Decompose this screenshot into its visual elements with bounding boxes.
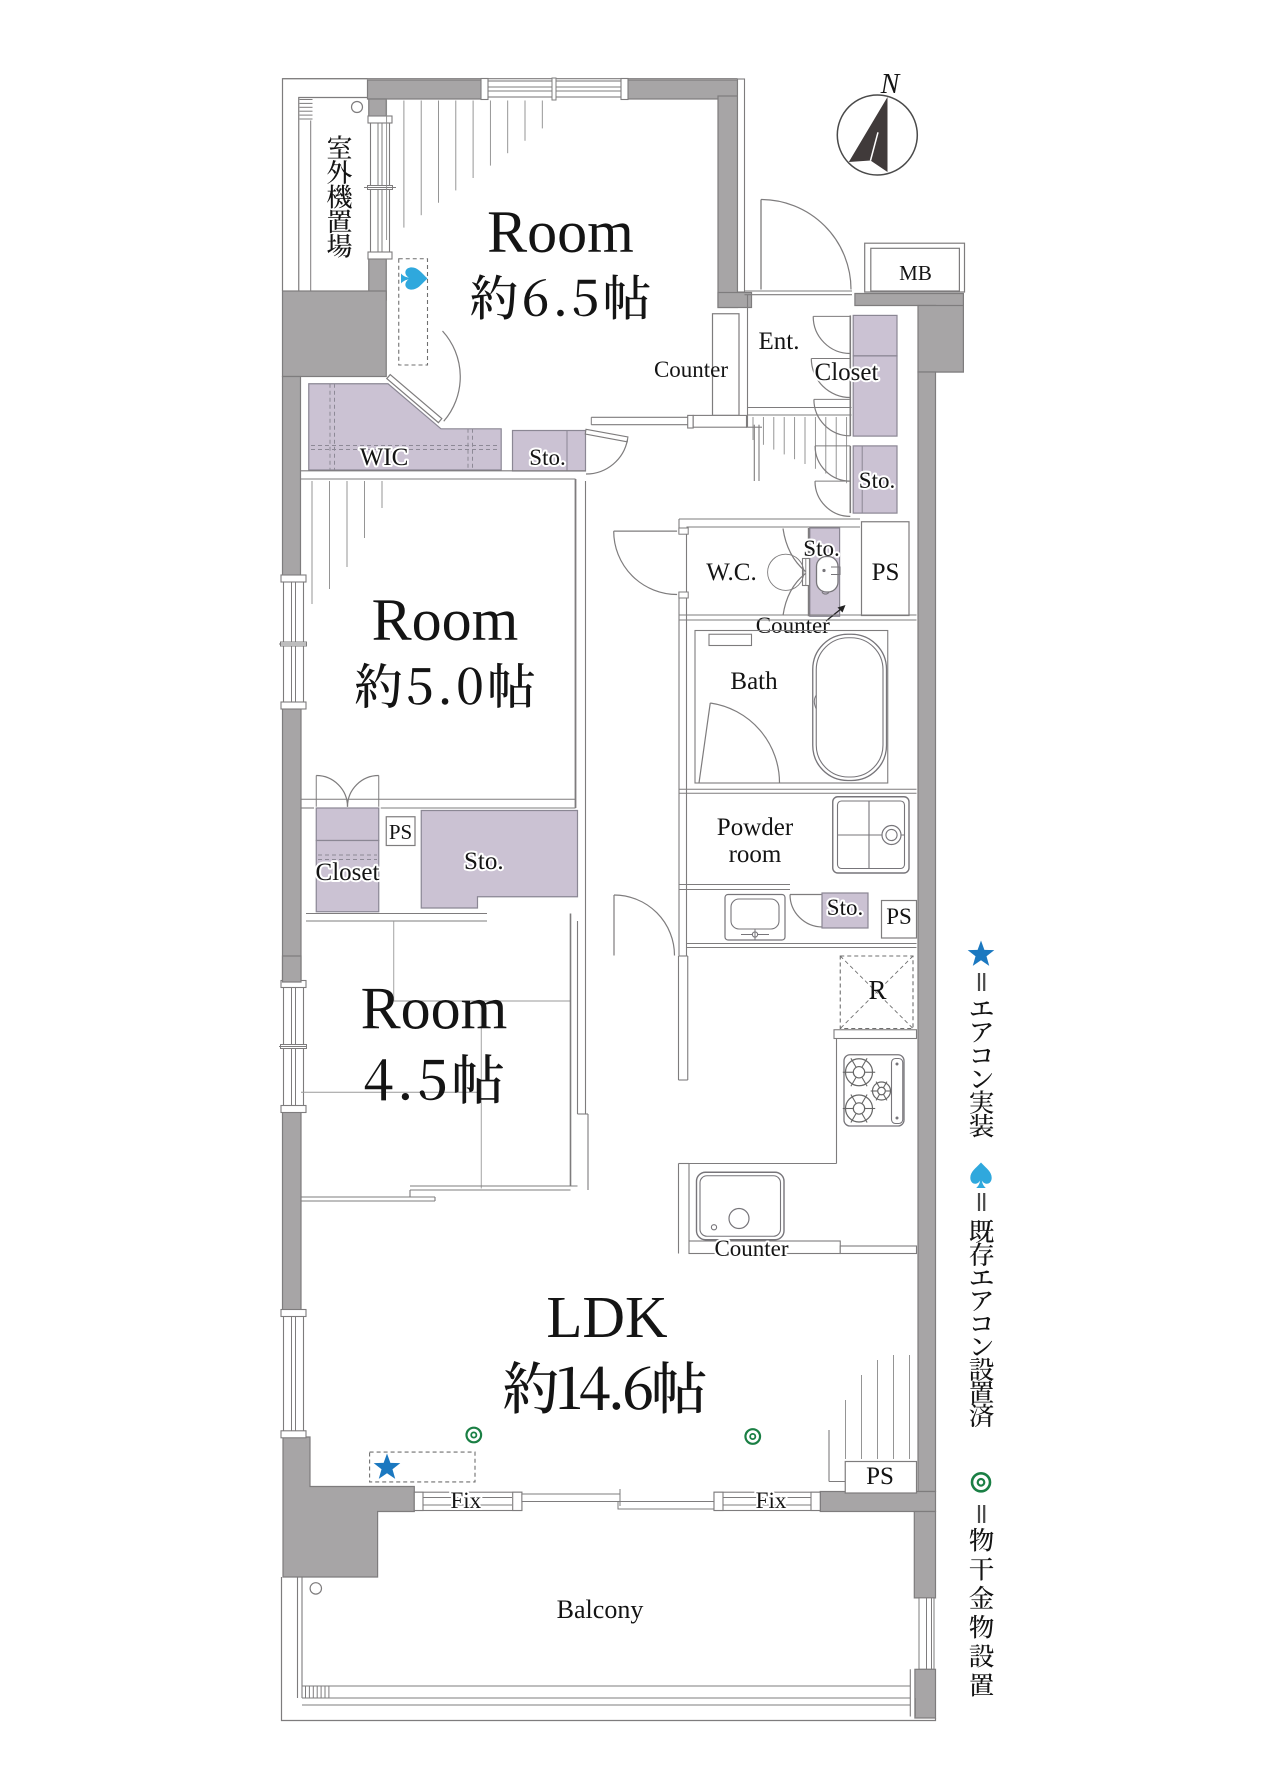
svg-text:Counter: Counter [756,613,830,638]
svg-text:WIC: WIC [360,444,409,471]
svg-text:PS: PS [872,559,900,586]
svg-text:Powder: Powder [717,814,794,841]
svg-text:Ent.: Ent. [759,328,800,355]
svg-text:Closet: Closet [316,859,380,886]
svg-text:Counter: Counter [654,357,728,382]
svg-text:Bath: Bath [730,668,778,695]
svg-text:room: room [729,841,782,868]
svg-text:Sto.: Sto. [859,468,895,493]
svg-text:Fix: Fix [756,1488,787,1513]
svg-text:PS: PS [866,1463,894,1490]
svg-text:Sto.: Sto. [529,445,565,470]
svg-text:Room: Room [361,976,508,1042]
svg-text:Room: Room [487,199,634,265]
svg-text:Sto.: Sto. [827,895,863,920]
svg-text:MB: MB [899,261,932,285]
svg-text:PS: PS [886,904,912,929]
svg-text:W.C.: W.C. [706,559,756,586]
svg-text:Balcony: Balcony [557,1595,644,1624]
svg-text:R: R [868,975,886,1005]
svg-text:Counter: Counter [714,1236,788,1261]
svg-text:Sto.: Sto. [464,848,504,875]
svg-text:Room: Room [372,587,519,653]
svg-text:Closet: Closet [815,359,879,386]
svg-text:LDK: LDK [546,1284,667,1350]
svg-text:Fix: Fix [450,1488,481,1513]
svg-text:PS: PS [389,820,412,844]
svg-text:N: N [880,69,901,100]
